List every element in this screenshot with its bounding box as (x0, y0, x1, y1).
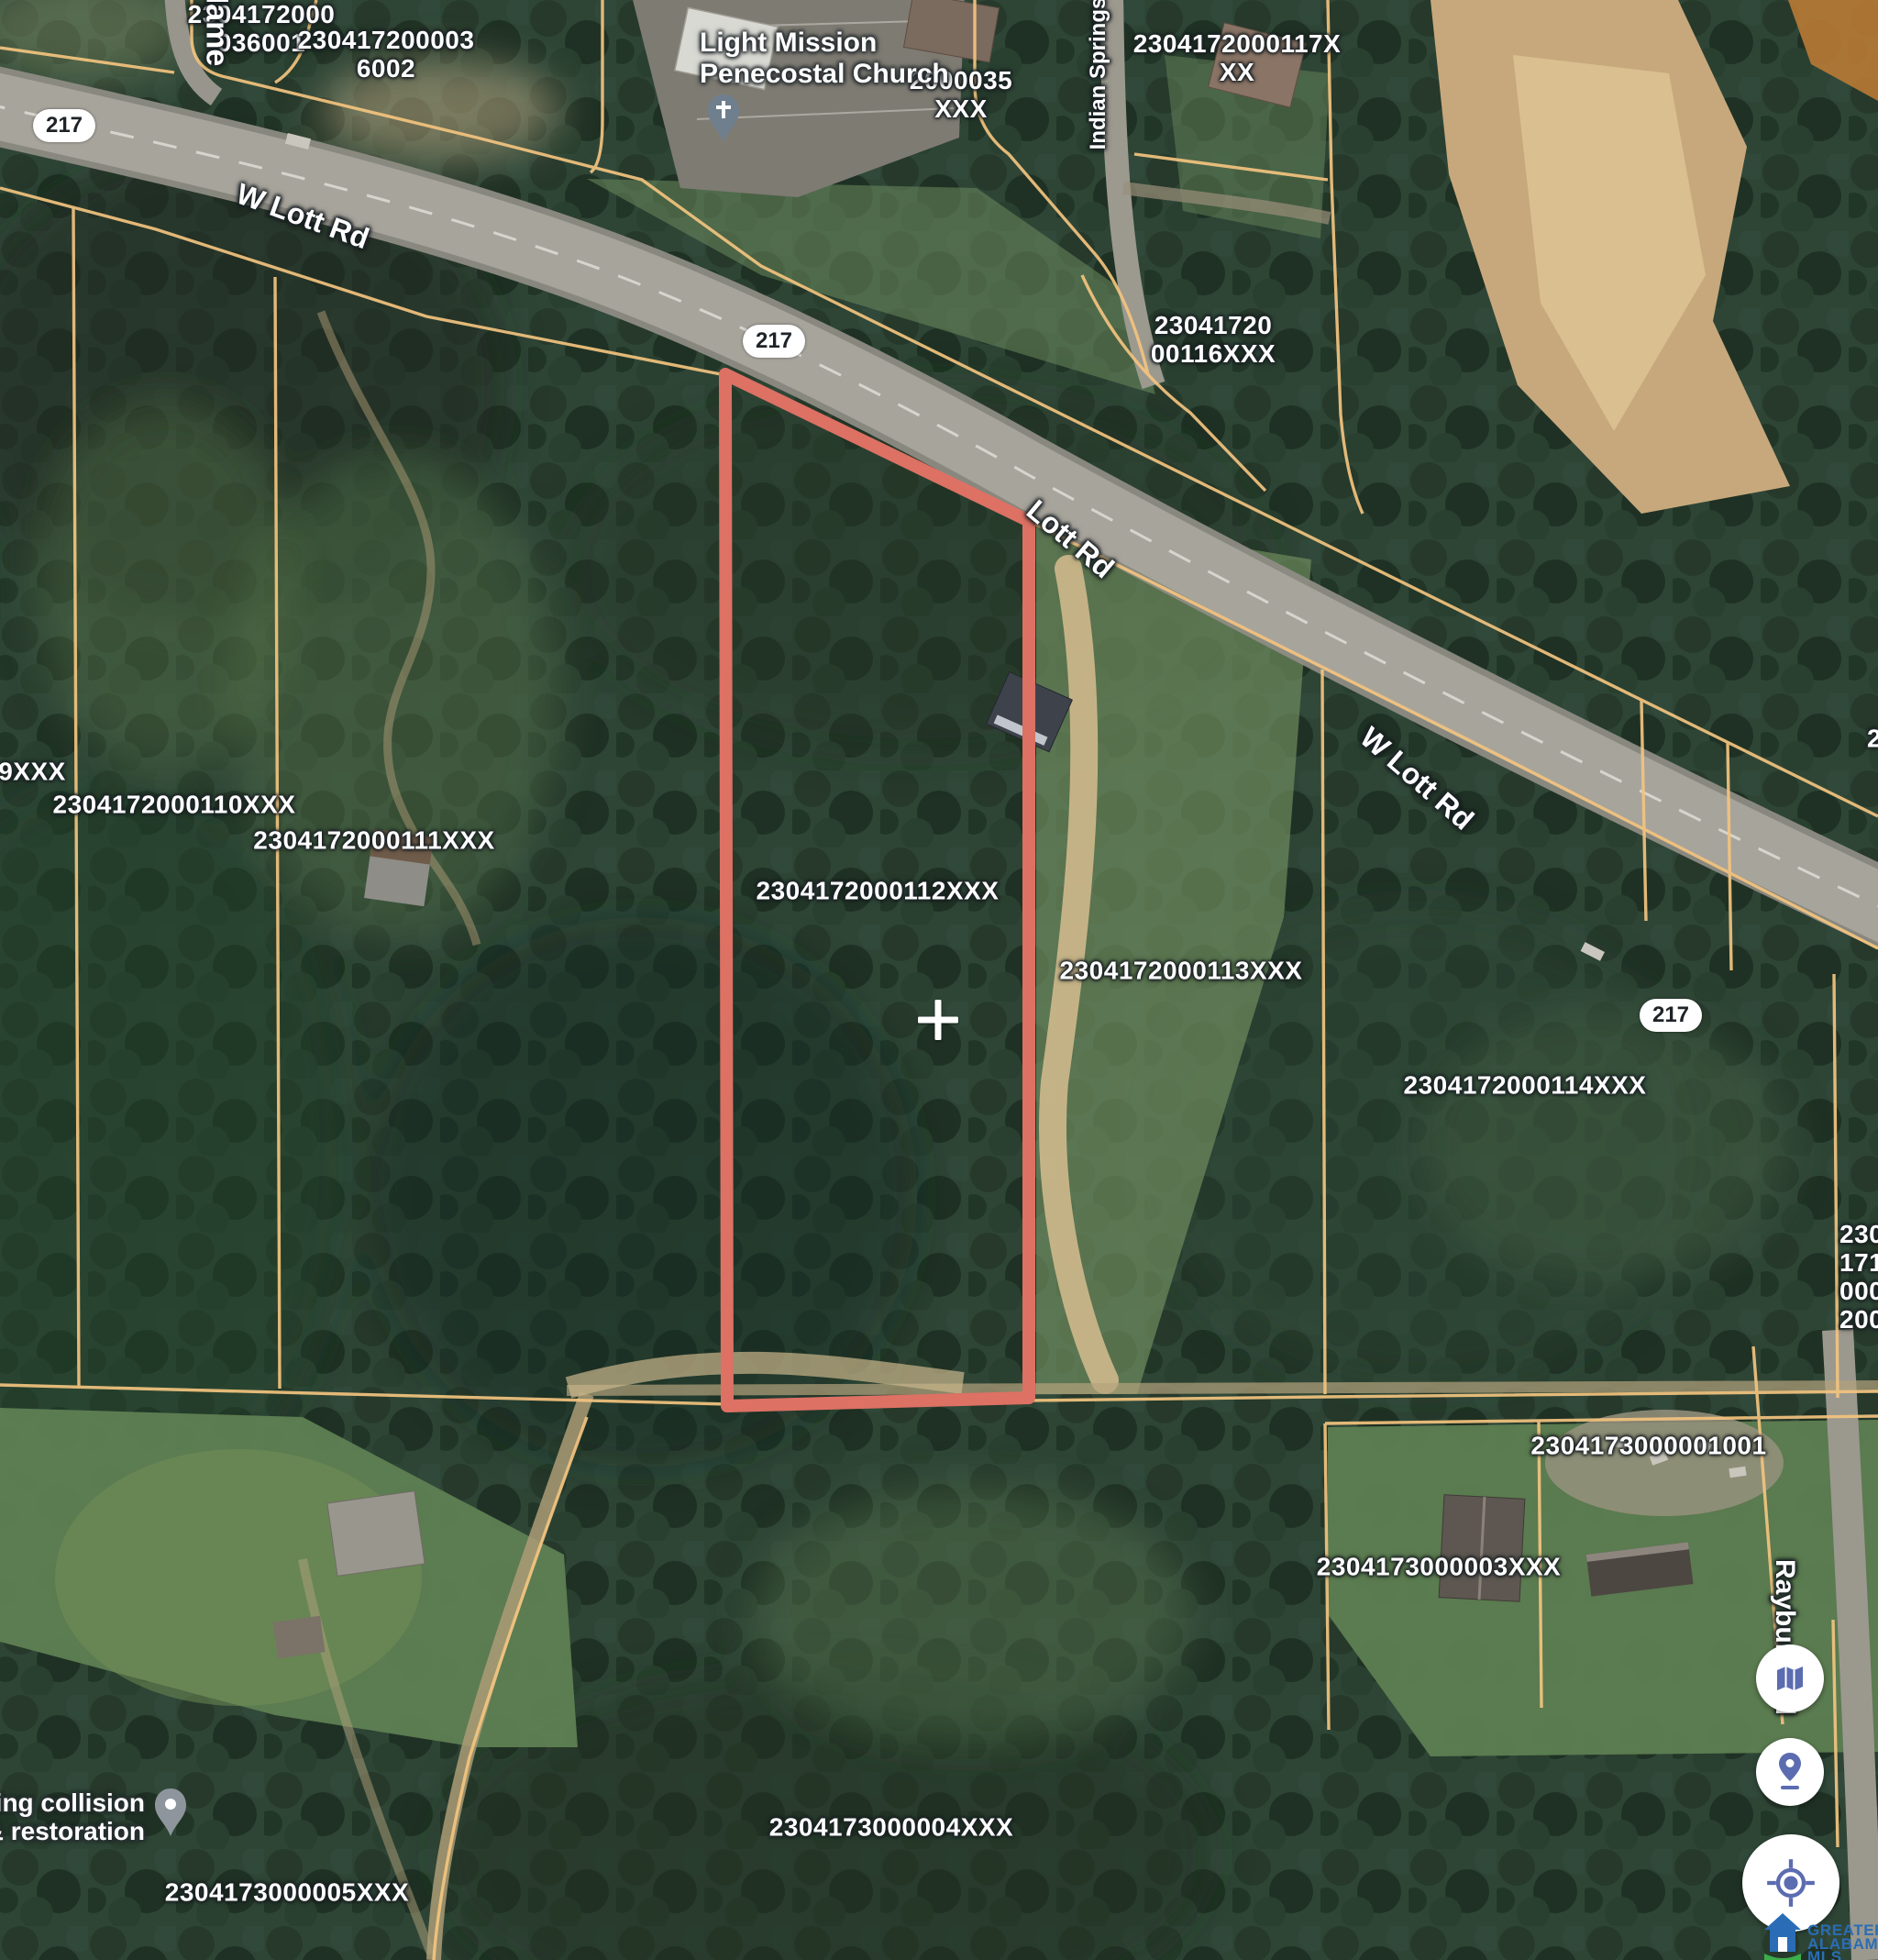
my-location-icon (1765, 1857, 1817, 1909)
satellite-map[interactable]: 2304172000 036001230417200003 6002200003… (0, 0, 1878, 1960)
place-search-button[interactable] (1756, 1738, 1824, 1806)
location-pin-icon (1773, 1751, 1806, 1793)
satellite-imagery (0, 0, 1878, 1960)
poi-pin-collision[interactable] (153, 1787, 188, 1843)
map-icon (1773, 1663, 1807, 1694)
greater-alabama-mls-logo: GREATER ALABAMA MLS (1762, 1911, 1878, 1960)
poi-pin-church[interactable] (706, 93, 741, 149)
mls-logo-text: GREATER ALABAMA MLS (1807, 1911, 1878, 1960)
church-icon (706, 93, 741, 144)
poi-pin-icon (153, 1787, 188, 1838)
mls-logo-line: MLS (1807, 1951, 1878, 1960)
mls-house-icon (1762, 1911, 1803, 1960)
map-type-button[interactable] (1756, 1644, 1824, 1712)
